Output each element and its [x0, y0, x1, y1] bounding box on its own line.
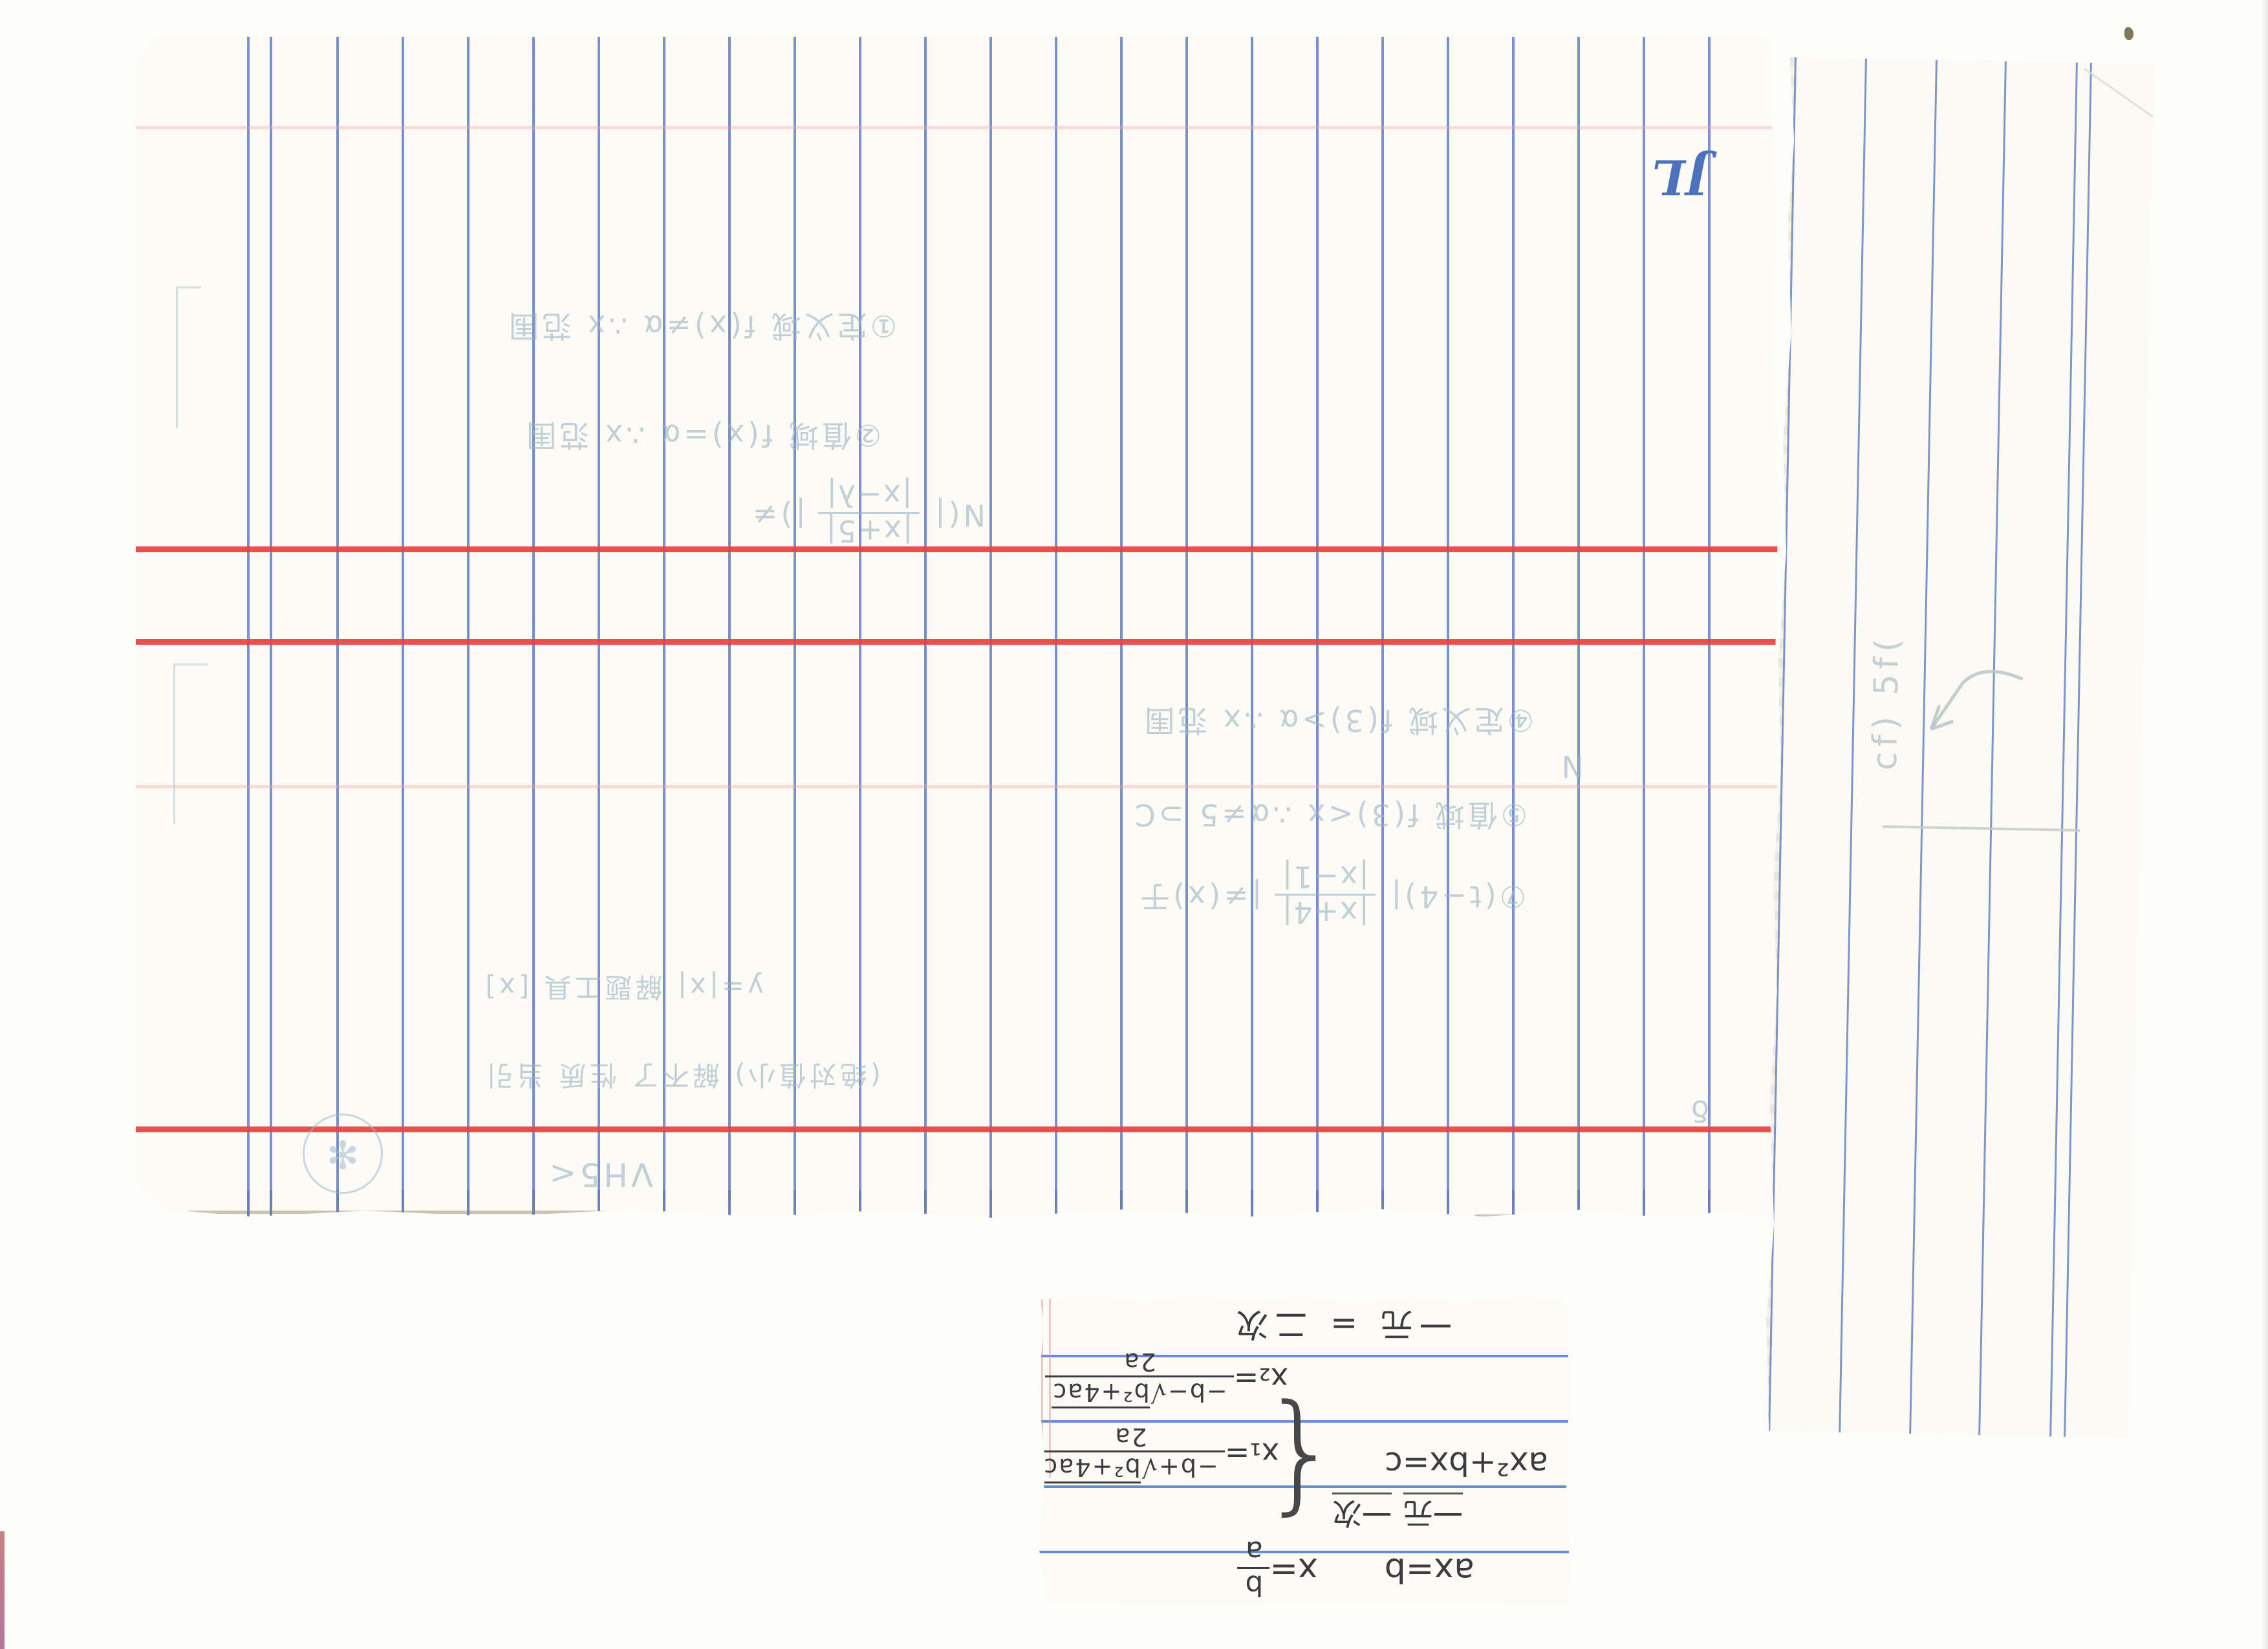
main-notebook-page: JL ①定义域 f(x)≠α ∴x 范围 ②值域 f(x)=α ∴x 范围 N(…	[136, 36, 1780, 1219]
fraction-numerator: |x+4|	[1275, 894, 1376, 928]
red-paper-sliver	[0, 1531, 5, 1649]
stray-pencil-mark: δ	[1674, 1094, 1709, 1129]
ruled-line	[1185, 37, 1188, 1232]
fraction-denominator: 2a	[1114, 1423, 1147, 1450]
handwriting-line: (绝对值小) 解不了 性质 当引	[338, 1020, 881, 1092]
fraction-numerator: −b+√b²+4ac	[1036, 1450, 1225, 1480]
fraction-denominator: |x−1|	[1281, 861, 1369, 893]
linear-equation-row: ax=b x=ba	[1237, 1536, 1474, 1600]
red-margin-line	[136, 546, 1780, 552]
ruled-line	[1055, 37, 1057, 1232]
fraction-denominator: a	[1244, 1536, 1263, 1567]
fraction-numerator: b	[1237, 1567, 1269, 1600]
handwriting-line: ⑤值域 f(3)<x ∴α≠5 ⊃C	[771, 749, 1528, 833]
label-word: 一元	[1403, 1493, 1463, 1531]
fraction-numerator: |x+5|	[818, 512, 919, 546]
handwriting-scribble: VH5<	[401, 1130, 653, 1194]
fraction-denominator: |x−λ|	[826, 479, 913, 512]
x1-prefix: x₁=	[1225, 1436, 1279, 1471]
fraction-numerator: −b−√b²+4ac	[1045, 1375, 1234, 1405]
linear-solution: x=	[1269, 1550, 1317, 1589]
red-margin-line	[136, 639, 1780, 645]
handwriting-line: ①定义域 f(x)≠α ∴x 范围	[338, 282, 897, 344]
notebook-brand-logo: JL	[1650, 149, 1709, 204]
expression-suffix: |)≠	[750, 498, 819, 533]
ruled-line	[1251, 37, 1253, 1232]
fraction: |x+5||x−λ|	[818, 479, 919, 546]
expression-prefix: N(|	[920, 498, 986, 533]
ruled-line	[1381, 37, 1384, 1232]
ruled-line	[270, 37, 272, 1232]
ruled-line	[924, 37, 927, 1232]
dark-speck	[2124, 27, 2133, 40]
note-paper-scrap: ax=b x=ba 一元一次 ax²+bx=c { x₁=−b+√b²+4ac2…	[1036, 1293, 1571, 1609]
scanner-edge-shadow	[2262, 0, 2268, 1649]
red-margin-line	[136, 1126, 1780, 1132]
fraction-denominator: 2a	[1123, 1348, 1156, 1375]
radicand: b²+4ac	[1042, 1453, 1141, 1483]
ruled-line	[1643, 37, 1645, 1232]
label-word: 一次	[1332, 1493, 1392, 1531]
handwriting-expression: N(| |x+5||x−λ| |)≠	[404, 462, 986, 546]
x2-prefix: x₂=	[1234, 1361, 1288, 1396]
scrap-handwriting-layer: ax=b x=ba 一元一次 ax²+bx=c { x₁=−b+√b²+4ac2…	[1036, 1293, 1571, 1609]
torn-paper-strip: cf) 5f(	[1756, 57, 2154, 1438]
quadratic-label: 一元 = 二次	[1229, 1304, 1452, 1350]
edge-smudge	[1474, 1214, 1571, 1218]
handwriting-line: ④定义域 f(3)>α ∴x 范围	[815, 661, 1534, 738]
radical-prefix: −b+√	[1141, 1453, 1218, 1482]
x2-solution: x₂=−b−√b²+4ac2a	[1045, 1348, 1288, 1405]
ruled-line	[1708, 37, 1711, 1232]
x1-solution: x₁=−b+√b²+4ac2a	[1036, 1423, 1279, 1480]
scanned-document: JL ①定义域 f(x)≠α ∴x 范围 ②值域 f(x)=α ∴x 范围 N(…	[0, 0, 2268, 1649]
circled-doodle: ✻	[303, 1114, 383, 1194]
ruled-line	[1512, 37, 1515, 1232]
pencil-bracket	[176, 286, 201, 428]
fraction: ba	[1237, 1536, 1269, 1600]
stray-pencil-mark: N	[1539, 749, 1584, 784]
handwriting-line: ②值域 f(x)=α ∴x 范围	[335, 389, 881, 453]
ruled-line	[989, 37, 992, 1232]
radicand: b²+4ac	[1052, 1378, 1150, 1408]
linear-label: 一元一次	[1321, 1494, 1463, 1536]
pencil-bracket	[173, 663, 208, 824]
fraction: −b−√b²+4ac2a	[1045, 1348, 1234, 1405]
fraction: −b+√b²+4ac2a	[1036, 1423, 1225, 1480]
ruled-line	[1316, 37, 1319, 1232]
faint-margin-line	[136, 126, 1780, 129]
expression-prefix: ⑦(t−4)|	[1376, 879, 1526, 914]
fraction: |x+4||x−1|	[1275, 861, 1376, 928]
expression-suffix: |≠(x)于	[1137, 879, 1275, 914]
linear-equation: ax=b	[1385, 1550, 1474, 1589]
handwriting-expression: ⑦(t−4)| |x+4||x−1| |≠(x)于	[565, 844, 1526, 928]
pencil-arrow-layer	[1756, 57, 2154, 1438]
quadratic-equation: ax²+bx=c	[1385, 1445, 1548, 1482]
edge-smudge	[188, 1211, 653, 1214]
ruled-line	[1577, 37, 1580, 1232]
ruled-line	[1120, 37, 1123, 1232]
handwriting-line: y=|x| 解题工具 [x]	[440, 939, 764, 1004]
ruled-line	[247, 37, 250, 1232]
ruled-line	[1447, 37, 1449, 1232]
arrow-shaft	[1931, 671, 2023, 731]
radical-prefix: −b−√	[1150, 1378, 1227, 1406]
